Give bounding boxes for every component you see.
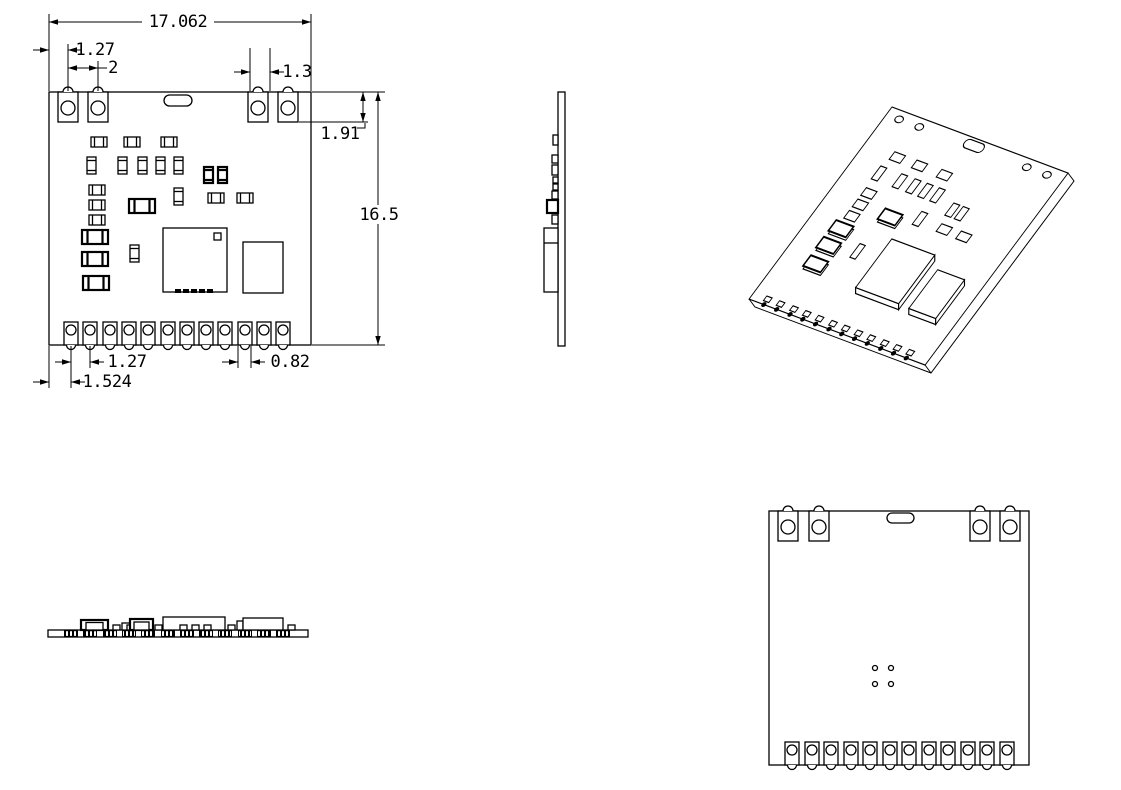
dim-bottom-pad-width-label: 0.82 [271,352,310,372]
dimension-top-pad-pitch: 2 [68,58,118,91]
dimension-top-edge-offset: 1.27 [33,40,114,91]
main-ic [163,228,227,293]
dimension-top-pad-length: 1.91 [299,92,385,144]
front-board-outline [49,92,311,345]
slot-hole [887,513,914,523]
castellated-pad [778,506,798,541]
side-board-outline [558,92,565,346]
crystal-component [243,242,283,293]
castellated-pad [970,506,990,541]
bottom-edge-view [48,617,308,637]
iso-board-outline [749,107,1068,365]
front-view: 17.062 1.27 2 1.3 1.91 16.5 1. [33,12,400,392]
dim-top-edge-offset-label: 1.27 [76,40,115,60]
dim-overall-width-label: 17.062 [149,12,207,32]
dim-overall-height-label: 16.5 [360,205,399,225]
drawing-canvas: 17.062 1.27 2 1.3 1.91 16.5 1. [0,0,1121,790]
dim-top-pad-length-label: 1.91 [321,124,360,144]
castellated-pad [278,87,298,122]
back-view [769,506,1029,770]
slot-hole [164,95,192,106]
dimension-top-right-gap: 1.3 [234,48,312,91]
pin1-marker [214,233,221,240]
dim-bottom-pad-pitch-label: 1.27 [108,352,147,372]
castellated-pad [809,506,829,541]
castellated-pad [1000,506,1020,541]
pcb-drawing: 17.062 1.27 2 1.3 1.91 16.5 1. [0,0,1121,790]
dim-top-pad-pitch-label: 2 [108,58,118,78]
edge-components [81,617,295,630]
castellated-pad [58,87,78,122]
side-view [544,92,565,346]
castellated-pad [88,87,108,122]
side-components [544,135,558,292]
back-board-outline [769,511,1029,765]
iso-view [747,107,1074,373]
castellated-pad [248,87,268,122]
dim-bottom-edge-offset-label: 1.524 [83,372,132,392]
dim-top-right-gap-label: 1.3 [282,62,311,82]
dimension-bottom-pad-width: 0.82 [222,346,309,372]
